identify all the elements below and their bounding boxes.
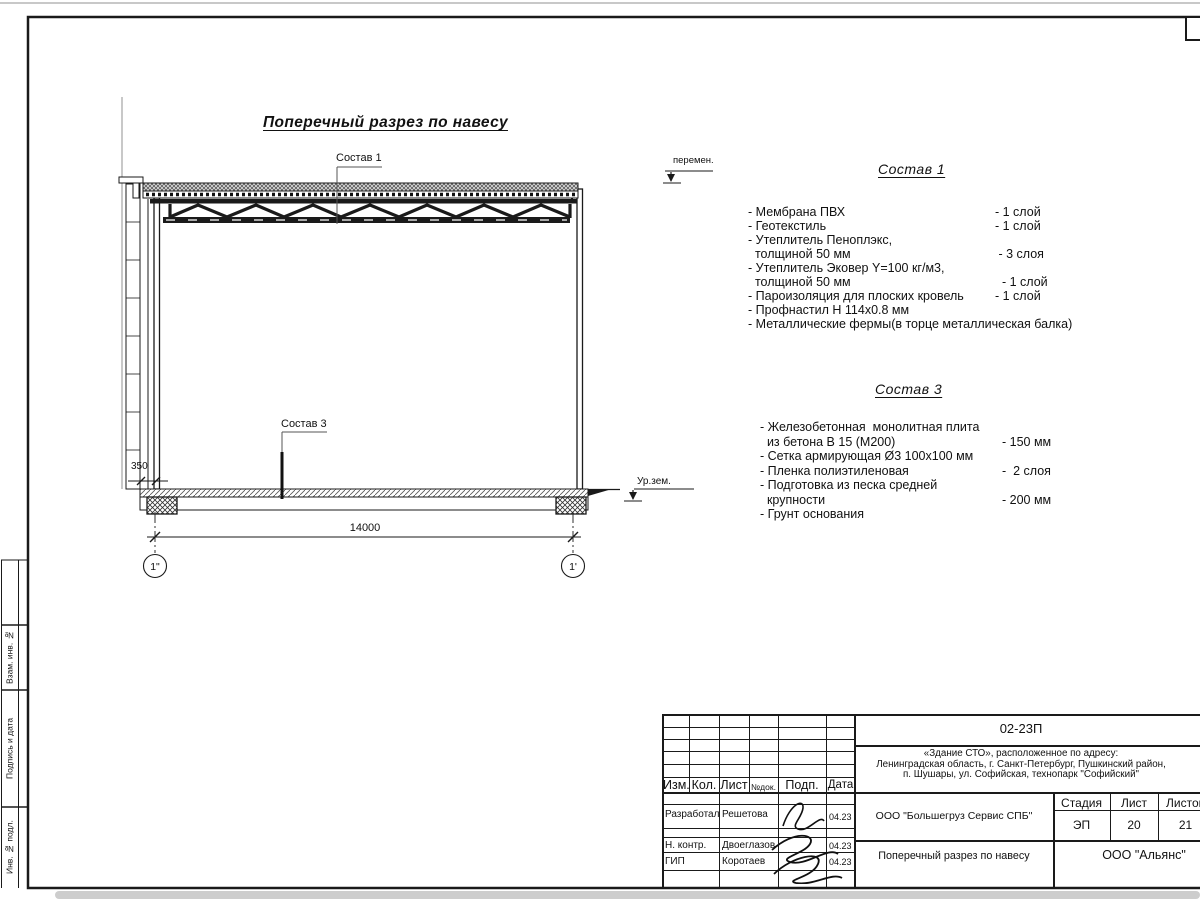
spec-item-qty: - 1 слой <box>995 275 1048 289</box>
horizontal-scrollbar-track[interactable] <box>55 891 1200 899</box>
spec-floor-item: - Сетка армирующая Ø3 100х100 мм <box>760 449 979 464</box>
tb-sheet-name: Поперечный разрез по навесу <box>857 850 1051 862</box>
roof-assembly <box>143 183 578 198</box>
steel-truss <box>150 199 577 223</box>
tb-name-gip: Коротаев <box>722 856 765 867</box>
signature-ncontrol-gip <box>766 828 844 884</box>
axis-markers: 1" 1' <box>144 555 585 578</box>
tb-role-developer: Разработал <box>665 809 719 820</box>
spec-item-qty: - 200 мм <box>1002 493 1051 508</box>
spec-roof-item: толщиной 50 мм - 3 слоя <box>748 247 1072 261</box>
tb-date-developer: 04.23 <box>829 812 852 822</box>
tb-object-address: «Здание СТО», расположенное по адресу: Л… <box>857 749 1185 781</box>
spec-item-qty: - 1 слой <box>995 289 1041 303</box>
level-mark-ground <box>624 489 694 501</box>
tb-col-list: Лист <box>719 778 749 792</box>
spec-item-qty: - 1 слой <box>995 219 1041 233</box>
tb-sheets-value: 21 <box>1158 818 1200 832</box>
dimension-span-value: 14000 <box>300 522 430 534</box>
spec-item-text: крупности <box>760 493 825 507</box>
spec-roof-item: толщиной 50 мм - 1 слой <box>748 275 1072 289</box>
spec-item-qty: - 2 слоя <box>1002 464 1051 479</box>
spec-item-text: толщиной 50 мм <box>748 247 851 261</box>
margin-cell-podpis: Подпись и дата <box>1 690 18 807</box>
spec-floor-list: - Железобетонная монолитная плита из бет… <box>760 420 979 522</box>
spec-floor-item: - Грунт основания <box>760 507 979 522</box>
spec-item-qty: - 3 слоя <box>995 247 1044 261</box>
tb-col-izm: Изм. <box>663 778 689 792</box>
spec-roof-title: Состав 1 <box>878 161 945 177</box>
spec-item-qty: - 1 слой <box>995 205 1041 219</box>
spec-roof-item: - Пароизоляция для плоских кровель- 1 сл… <box>748 289 1072 303</box>
tb-col-sign: Подп. <box>778 778 826 792</box>
spec-item-text: - Пленка полиэтиленовая <box>760 464 909 478</box>
spec-item-text: - Профнастил Н 114х0.8 мм <box>748 303 909 317</box>
spec-floor-item: из бетона В 15 (М200)- 150 мм <box>760 435 979 450</box>
spec-roof-list: - Мембрана ПВХ- 1 слой - Геотекстиль- 1 … <box>748 205 1072 331</box>
spec-item-text: - Железобетонная монолитная плита <box>760 420 979 434</box>
margin-cell-vzam: Взам. инв. № <box>1 625 18 690</box>
level-ground-label: Ур.зем. <box>637 476 671 487</box>
tb-role-gip: ГИП <box>665 856 685 867</box>
spec-roof-item: - Утеплитель Пеноплэкс, <box>748 233 1072 247</box>
tb-address-line3: п. Шушары, ул. Софийская, технопарк "Соф… <box>857 770 1185 781</box>
spec-item-text: - Подготовка из песка средней <box>760 478 937 492</box>
callout-floor-label: Состав 3 <box>281 418 327 430</box>
callout-leaders <box>282 167 382 499</box>
axis-label-right: 1' <box>569 561 577 573</box>
spec-item-text: - Утеплитель Пеноплэкс, <box>748 233 892 247</box>
spec-roof-item: - Металлические фермы(в торце металличес… <box>748 317 1072 331</box>
tb-sheet-value: 20 <box>1110 818 1158 832</box>
spec-roof-item: - Профнастил Н 114х0.8 мм <box>748 303 1072 317</box>
spec-roof-item: - Мембрана ПВХ- 1 слой <box>748 205 1072 219</box>
spec-item-text: - Металлические фермы(в торце металличес… <box>748 317 1072 331</box>
drawing-sheet: 1" 1' Поперечный разрез по навесу Состав… <box>0 0 1200 900</box>
tb-stage-value: ЭП <box>1053 818 1110 832</box>
spec-item-text: - Грунт основания <box>760 507 864 521</box>
tb-doc-number: 02-23П <box>857 721 1185 736</box>
tb-address-line1: «Здание СТО», расположенное по адресу: <box>857 749 1185 760</box>
dimension-offset-value: 350 <box>131 461 148 472</box>
axis-label-left: 1" <box>150 561 160 573</box>
spec-floor-item: крупности- 200 мм <box>760 493 979 508</box>
spec-floor-item: - Подготовка из песка средней <box>760 478 979 493</box>
callout-roof-label: Состав 1 <box>336 152 382 164</box>
spec-floor-item: - Железобетонная монолитная плита <box>760 420 979 435</box>
tb-sheets-header: Листов <box>1158 796 1200 810</box>
spec-item-text: - Мембрана ПВХ <box>748 205 845 219</box>
spec-roof-item: - Утеплитель Эковер Y=100 кг/м3, <box>748 261 1072 275</box>
spec-item-text: толщиной 50 мм <box>748 275 851 289</box>
floor-slab <box>140 489 620 510</box>
adjacent-wall <box>119 97 148 489</box>
spec-item-text: - Геотекстиль <box>748 219 826 233</box>
tb-col-date: Дата <box>826 779 855 791</box>
level-variable-label: перемен. <box>673 155 714 166</box>
tb-col-docno: №док. <box>749 782 778 792</box>
tb-stage-header: Стадия <box>1053 796 1110 810</box>
spec-floor-item: - Пленка полиэтиленовая- 2 слоя <box>760 464 979 479</box>
tb-col-kol: Кол. <box>689 778 719 792</box>
level-mark-variable <box>663 171 713 183</box>
spec-floor-title: Состав 3 <box>875 381 942 397</box>
tb-sheet-header: Лист <box>1110 796 1158 810</box>
columns <box>154 189 583 489</box>
spec-item-qty: - 150 мм <box>1002 435 1051 450</box>
tb-role-ncontrol: Н. контр. <box>665 840 706 851</box>
spec-item-text: из бетона В 15 (М200) <box>760 435 895 449</box>
tb-name-developer: Решетова <box>722 809 768 820</box>
tb-design-org: ООО "Альянс" <box>1055 848 1200 862</box>
spec-item-text: - Пароизоляция для плоских кровель <box>748 289 964 303</box>
margin-cell-inv: Инв. № подл. <box>1 807 18 888</box>
tb-client-org: ООО "Большегруз Сервис СПБ" <box>857 810 1051 822</box>
spec-item-text: - Утеплитель Эковер Y=100 кг/м3, <box>748 261 944 275</box>
spec-roof-item: - Геотекстиль- 1 слой <box>748 219 1072 233</box>
spec-item-text: - Сетка армирующая Ø3 100х100 мм <box>760 449 973 463</box>
drawing-title: Поперечный разрез по навесу <box>263 114 508 132</box>
